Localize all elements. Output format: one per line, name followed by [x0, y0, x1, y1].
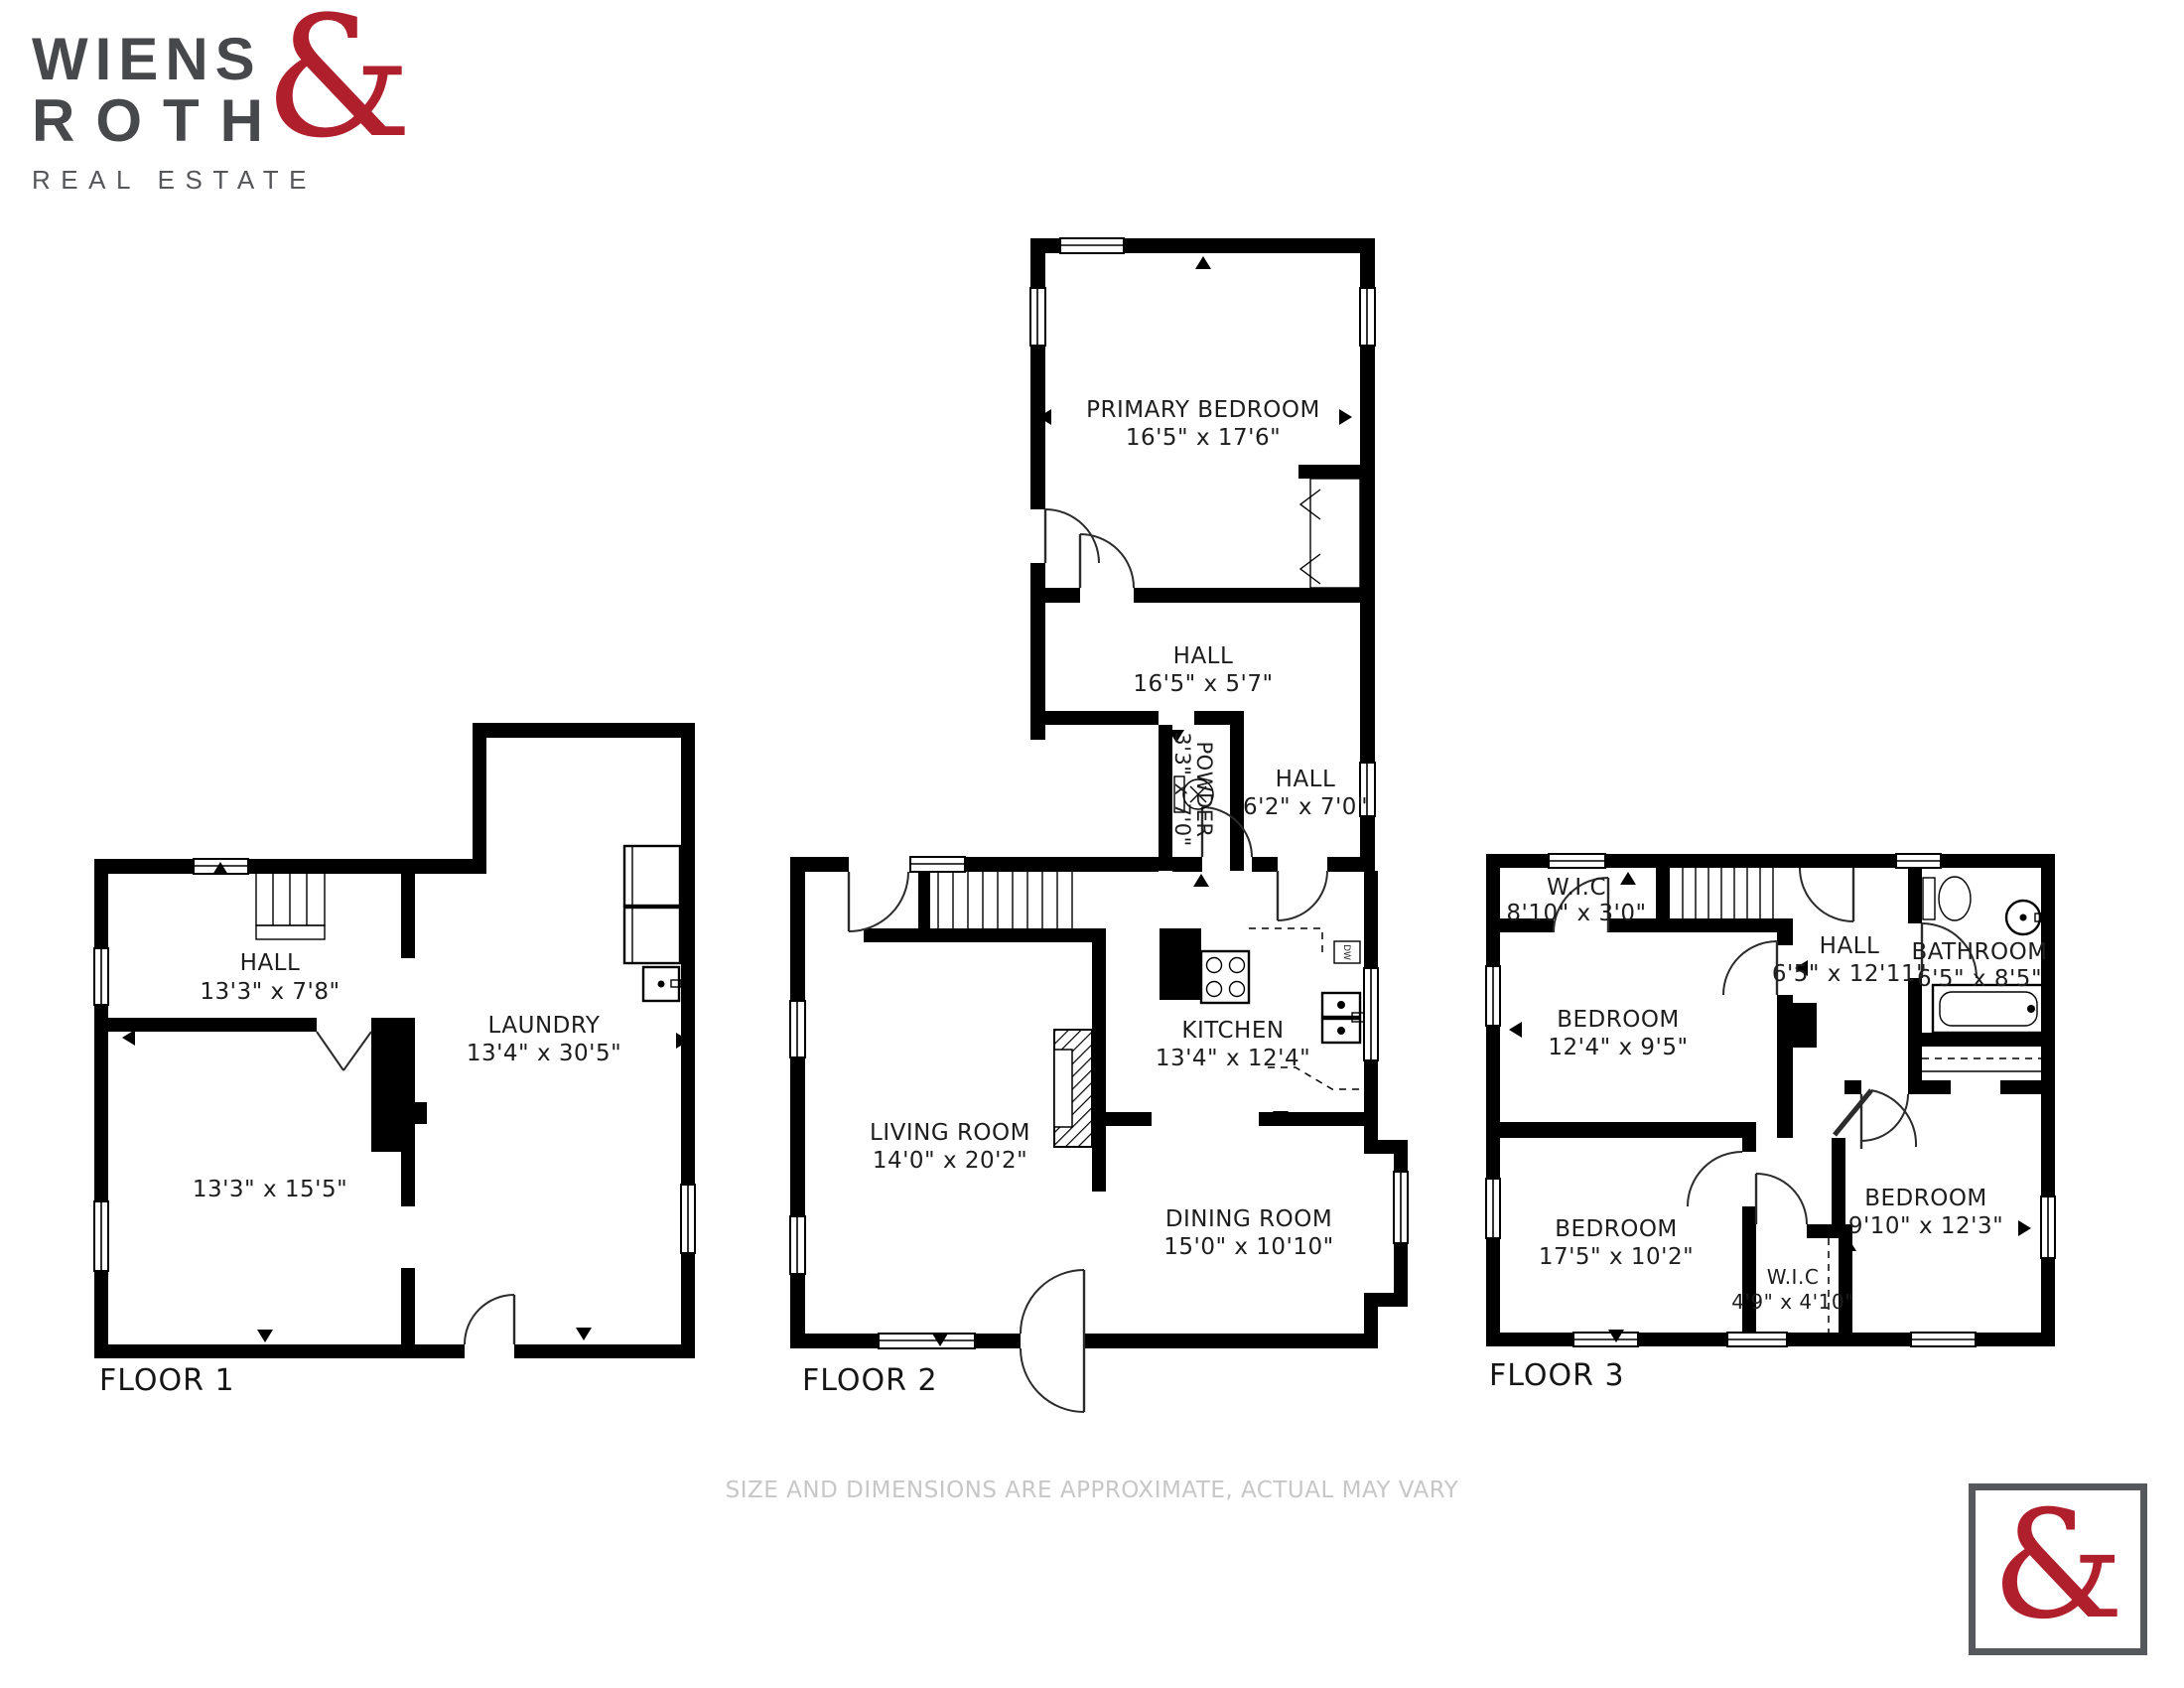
- floor-1-plan: HALL 13'3" x 7'8" 13'3" x 15'5" LAUNDRY …: [94, 723, 695, 1398]
- svg-text:12'4" x 9'5": 12'4" x 9'5": [1548, 1035, 1688, 1060]
- bathroom-sink-icon: [2006, 901, 2045, 934]
- stairs-icon: [256, 869, 325, 939]
- floor-1-label: FLOOR 1: [99, 1363, 235, 1398]
- kitchen-sink-icon: [1322, 993, 1364, 1043]
- room-label-bathroom: BATHROOM 6'5" x 8'5": [1911, 939, 2047, 992]
- svg-text:4'9" x 4'10": 4'9" x 4'10": [1731, 1290, 1854, 1314]
- svg-text:BEDROOM: BEDROOM: [1555, 1216, 1678, 1242]
- room-name: HALL: [240, 950, 301, 976]
- svg-text:HALL: HALL: [1820, 933, 1880, 959]
- svg-text:6'2" x 7'0": 6'2" x 7'0": [1243, 794, 1368, 820]
- room-label-hall-f1: HALL 13'3" x 7'8": [200, 950, 340, 1005]
- footer-ampersand-icon: &: [1976, 1490, 2140, 1641]
- svg-text:DW: DW: [1341, 944, 1351, 960]
- svg-text:16'5" x 5'7": 16'5" x 5'7": [1133, 671, 1273, 697]
- disclaimer-text: SIZE AND DIMENSIONS ARE APPROXIMATE, ACT…: [0, 1477, 2184, 1503]
- room-name: LAUNDRY: [488, 1013, 601, 1039]
- closet-icon: [1300, 479, 1360, 588]
- room-dims: 13'3" x 15'5": [193, 1177, 347, 1202]
- svg-text:16'5" x 17'6": 16'5" x 17'6": [1126, 425, 1281, 451]
- floorplan-page: WIENS ROTH & REAL ESTATE: [0, 0, 2184, 1688]
- svg-text:BATHROOM: BATHROOM: [1911, 939, 2047, 965]
- svg-text:LIVING ROOM: LIVING ROOM: [870, 1120, 1030, 1146]
- svg-text:W.I.C: W.I.C: [1547, 875, 1606, 901]
- svg-text:KITCHEN: KITCHEN: [1181, 1018, 1284, 1044]
- svg-text:BEDROOM: BEDROOM: [1864, 1186, 1987, 1211]
- svg-text:8'10" x 3'0": 8'10" x 3'0": [1506, 901, 1646, 926]
- fireplace-icon: [1054, 1030, 1092, 1147]
- room-label-living-room: LIVING ROOM 14'0" x 20'2": [870, 1120, 1030, 1174]
- room-dims: 13'4" x 30'5": [467, 1041, 621, 1066]
- room-label-hall-upper: HALL 16'5" x 5'7": [1133, 643, 1273, 697]
- room-label-hall-lower: HALL 6'2" x 7'0": [1243, 767, 1368, 820]
- dryer-icon: [624, 908, 680, 963]
- stove-icon: [1201, 951, 1249, 1003]
- room-label-dining-room: DINING ROOM 15'0" x 10'10": [1163, 1206, 1333, 1260]
- room-label-bedroom-bottom: BEDROOM 17'5" x 10'2": [1539, 1216, 1694, 1270]
- svg-text:HALL: HALL: [1276, 767, 1336, 792]
- room-label-primary-bedroom: PRIMARY BEDROOM 16'5" x 17'6": [1086, 397, 1320, 451]
- room-label-bedroom-right: BEDROOM 9'10" x 12'3": [1848, 1186, 2003, 1239]
- svg-text:BEDROOM: BEDROOM: [1557, 1007, 1680, 1033]
- floor-3-plan: W.I.C 8'10" x 3'0" HALL 6'5" x 12'11" BA…: [1486, 854, 2055, 1393]
- room-label-kitchen: KITCHEN 13'4" x 12'4": [1156, 1018, 1310, 1071]
- sink-icon: [643, 967, 681, 1001]
- svg-text:HALL: HALL: [1173, 643, 1234, 669]
- svg-text:6'5" x 12'11": 6'5" x 12'11": [1772, 961, 1927, 987]
- stairs-icon: [1683, 868, 1773, 918]
- room-label-hall-f3: HALL 6'5" x 12'11": [1772, 933, 1927, 987]
- svg-text:17'5" x 10'2": 17'5" x 10'2": [1539, 1244, 1694, 1270]
- svg-text:15'0" x 10'10": 15'0" x 10'10": [1163, 1234, 1333, 1260]
- floor-2-label: FLOOR 2: [802, 1363, 938, 1398]
- svg-text:6'5" x 8'5": 6'5" x 8'5": [1917, 966, 2042, 992]
- room-label-room-f1: 13'3" x 15'5": [193, 1177, 347, 1202]
- floor-3-label: FLOOR 3: [1489, 1358, 1625, 1393]
- svg-text:DINING ROOM: DINING ROOM: [1165, 1206, 1332, 1232]
- footer-logo-box: &: [1969, 1483, 2147, 1655]
- svg-text:POWDER: POWDER: [1192, 742, 1216, 838]
- svg-text:9'10" x 12'3": 9'10" x 12'3": [1848, 1213, 2003, 1239]
- floor-2-plan: DW: [790, 238, 1408, 1412]
- room-label-bedroom-left: BEDROOM 12'4" x 9'5": [1548, 1007, 1688, 1060]
- dishwasher-icon: DW: [1334, 941, 1360, 963]
- washer-icon: [624, 846, 680, 906]
- svg-text:13'4" x 12'4": 13'4" x 12'4": [1156, 1046, 1310, 1071]
- bathtub-icon: [1933, 985, 2044, 1033]
- room-dims: 13'3" x 7'8": [200, 979, 340, 1005]
- toilet-icon: [1923, 877, 1971, 920]
- stairs-icon: [938, 871, 1072, 928]
- svg-text:3'3" x 7'0": 3'3" x 7'0": [1170, 732, 1194, 847]
- svg-text:W.I.C: W.I.C: [1767, 1265, 1820, 1289]
- svg-text:14'0" x 20'2": 14'0" x 20'2": [873, 1148, 1027, 1174]
- door-arc: [849, 509, 1327, 1412]
- room-label-laundry: LAUNDRY 13'4" x 30'5": [467, 1013, 621, 1066]
- svg-text:PRIMARY BEDROOM: PRIMARY BEDROOM: [1086, 397, 1320, 423]
- room-label-powder: POWDER 3'3" x 7'0": [1170, 732, 1216, 847]
- floorplans-drawing: HALL 13'3" x 7'8" 13'3" x 15'5" LAUNDRY …: [0, 0, 2184, 1688]
